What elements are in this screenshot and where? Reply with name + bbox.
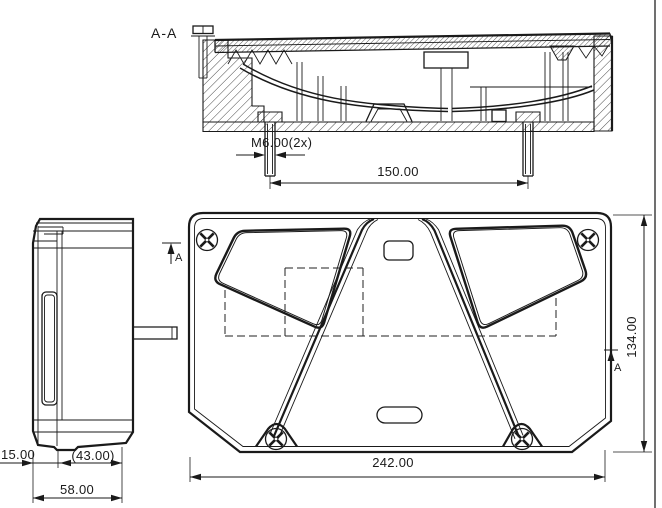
dimension-lens-depth-text: 15.00 — [1, 447, 35, 462]
cut-arrow-right-label: A — [614, 362, 622, 374]
dimension-body-depth-text: (43.00) — [71, 448, 114, 463]
dimension-total-depth-text: 58.00 — [60, 482, 94, 497]
section-label: A-A — [151, 25, 177, 41]
dimension-width-text: 242.00 — [372, 455, 414, 470]
cut-arrow-top-label: A — [175, 252, 183, 264]
dimension-thread-text: M6.00(2x) — [251, 135, 312, 150]
lamp-drawing-canvas: A-A — [0, 0, 662, 508]
dimension-stud-spacing-text: 150.00 — [377, 164, 419, 179]
technical-drawing-page: A-A — [0, 0, 662, 508]
housing-right-wall — [594, 36, 612, 131]
dimension-height-text: 134.00 — [624, 316, 639, 358]
housing-bottom-wall — [203, 122, 594, 132]
